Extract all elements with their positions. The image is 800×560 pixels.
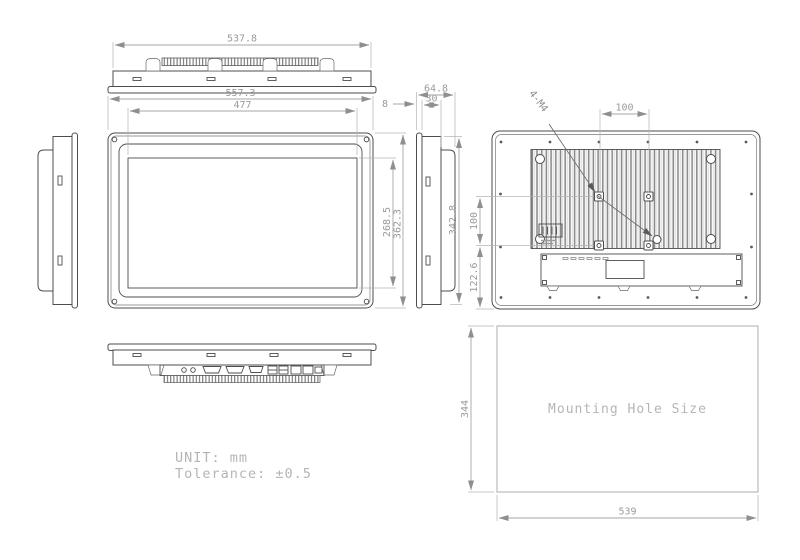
foot <box>547 286 559 291</box>
bottom-view <box>108 344 376 383</box>
small-port <box>315 367 322 373</box>
dim-front-outer-height: 362.3 <box>393 209 404 239</box>
dim-mounting-height: 344 <box>460 400 471 418</box>
label-thread-spec: 4-M4 <box>526 89 549 115</box>
bottom-foot <box>321 365 337 375</box>
lan-port <box>291 366 301 374</box>
note-tolerance: Tolerance: ±0.5 <box>175 466 312 482</box>
mount-hole <box>653 236 661 244</box>
dim-vesa-horizontal: 100 <box>615 103 633 114</box>
bottom-chassis <box>113 350 371 365</box>
io-ports <box>182 366 322 374</box>
dsub-port <box>203 367 221 374</box>
drawing-sheet: 537.8 557.3 477 268.5 362.3 <box>0 0 800 560</box>
bottom-heatsink-fins <box>164 376 320 383</box>
dim-mounting-width: 539 <box>618 507 636 518</box>
left-body <box>53 137 72 305</box>
dim-top-width: 537.8 <box>227 34 257 45</box>
left-bezel-edge <box>72 133 78 308</box>
top-view: 537.8 <box>108 34 376 94</box>
dsub-port <box>226 367 244 374</box>
right-side-view: 64.8 30 8 342.8 <box>382 84 462 309</box>
dim-side-bezel-depth: 8 <box>382 99 388 110</box>
right-body <box>422 137 441 305</box>
heatsink-corner-hole <box>707 235 716 244</box>
drawing-notes: UNIT: mm Tolerance: ±0.5 <box>175 450 312 482</box>
dim-vesa-vertical: 100 <box>469 212 480 230</box>
back-view: 100 100 122.6 4-M4 <box>469 89 760 309</box>
top-chassis <box>113 71 371 87</box>
left-rear-hump <box>38 150 53 291</box>
heatsink-corner-hole <box>536 235 545 244</box>
right-bezel-edge <box>417 133 423 308</box>
top-heatsink-fins <box>162 58 318 66</box>
back-heatsink-fins <box>531 150 720 249</box>
audio-jack <box>191 368 196 373</box>
video-port <box>249 367 263 373</box>
dim-front-display-width: 477 <box>233 100 251 111</box>
dim-front-outer-width: 557.3 <box>225 88 255 99</box>
technical-drawing: 537.8 557.3 477 268.5 362.3 <box>0 0 800 560</box>
foot <box>689 286 701 291</box>
foot <box>618 286 630 291</box>
bottom-foot <box>148 365 164 375</box>
heatsink-corner-hole <box>707 155 716 164</box>
dim-vesa-bottom-offset: 122.6 <box>469 262 480 292</box>
audio-jack <box>182 368 187 373</box>
dim-front-display-height: 268.5 <box>382 207 393 237</box>
mounting-label: Mounting Hole Size <box>548 402 707 417</box>
mounting-hole-outline: Mounting Hole Size 344 539 <box>460 326 758 521</box>
front-bezel-outer <box>108 133 373 308</box>
lan-port <box>303 366 313 374</box>
note-unit: UNIT: mm <box>175 450 248 466</box>
heatsink-corner-hole <box>536 155 545 164</box>
dim-side-body-height: 342.8 <box>448 205 459 235</box>
front-view: 557.3 477 268.5 362.3 <box>108 88 406 308</box>
dim-side-body-depth: 30 <box>425 94 437 105</box>
left-side-view <box>38 133 78 308</box>
